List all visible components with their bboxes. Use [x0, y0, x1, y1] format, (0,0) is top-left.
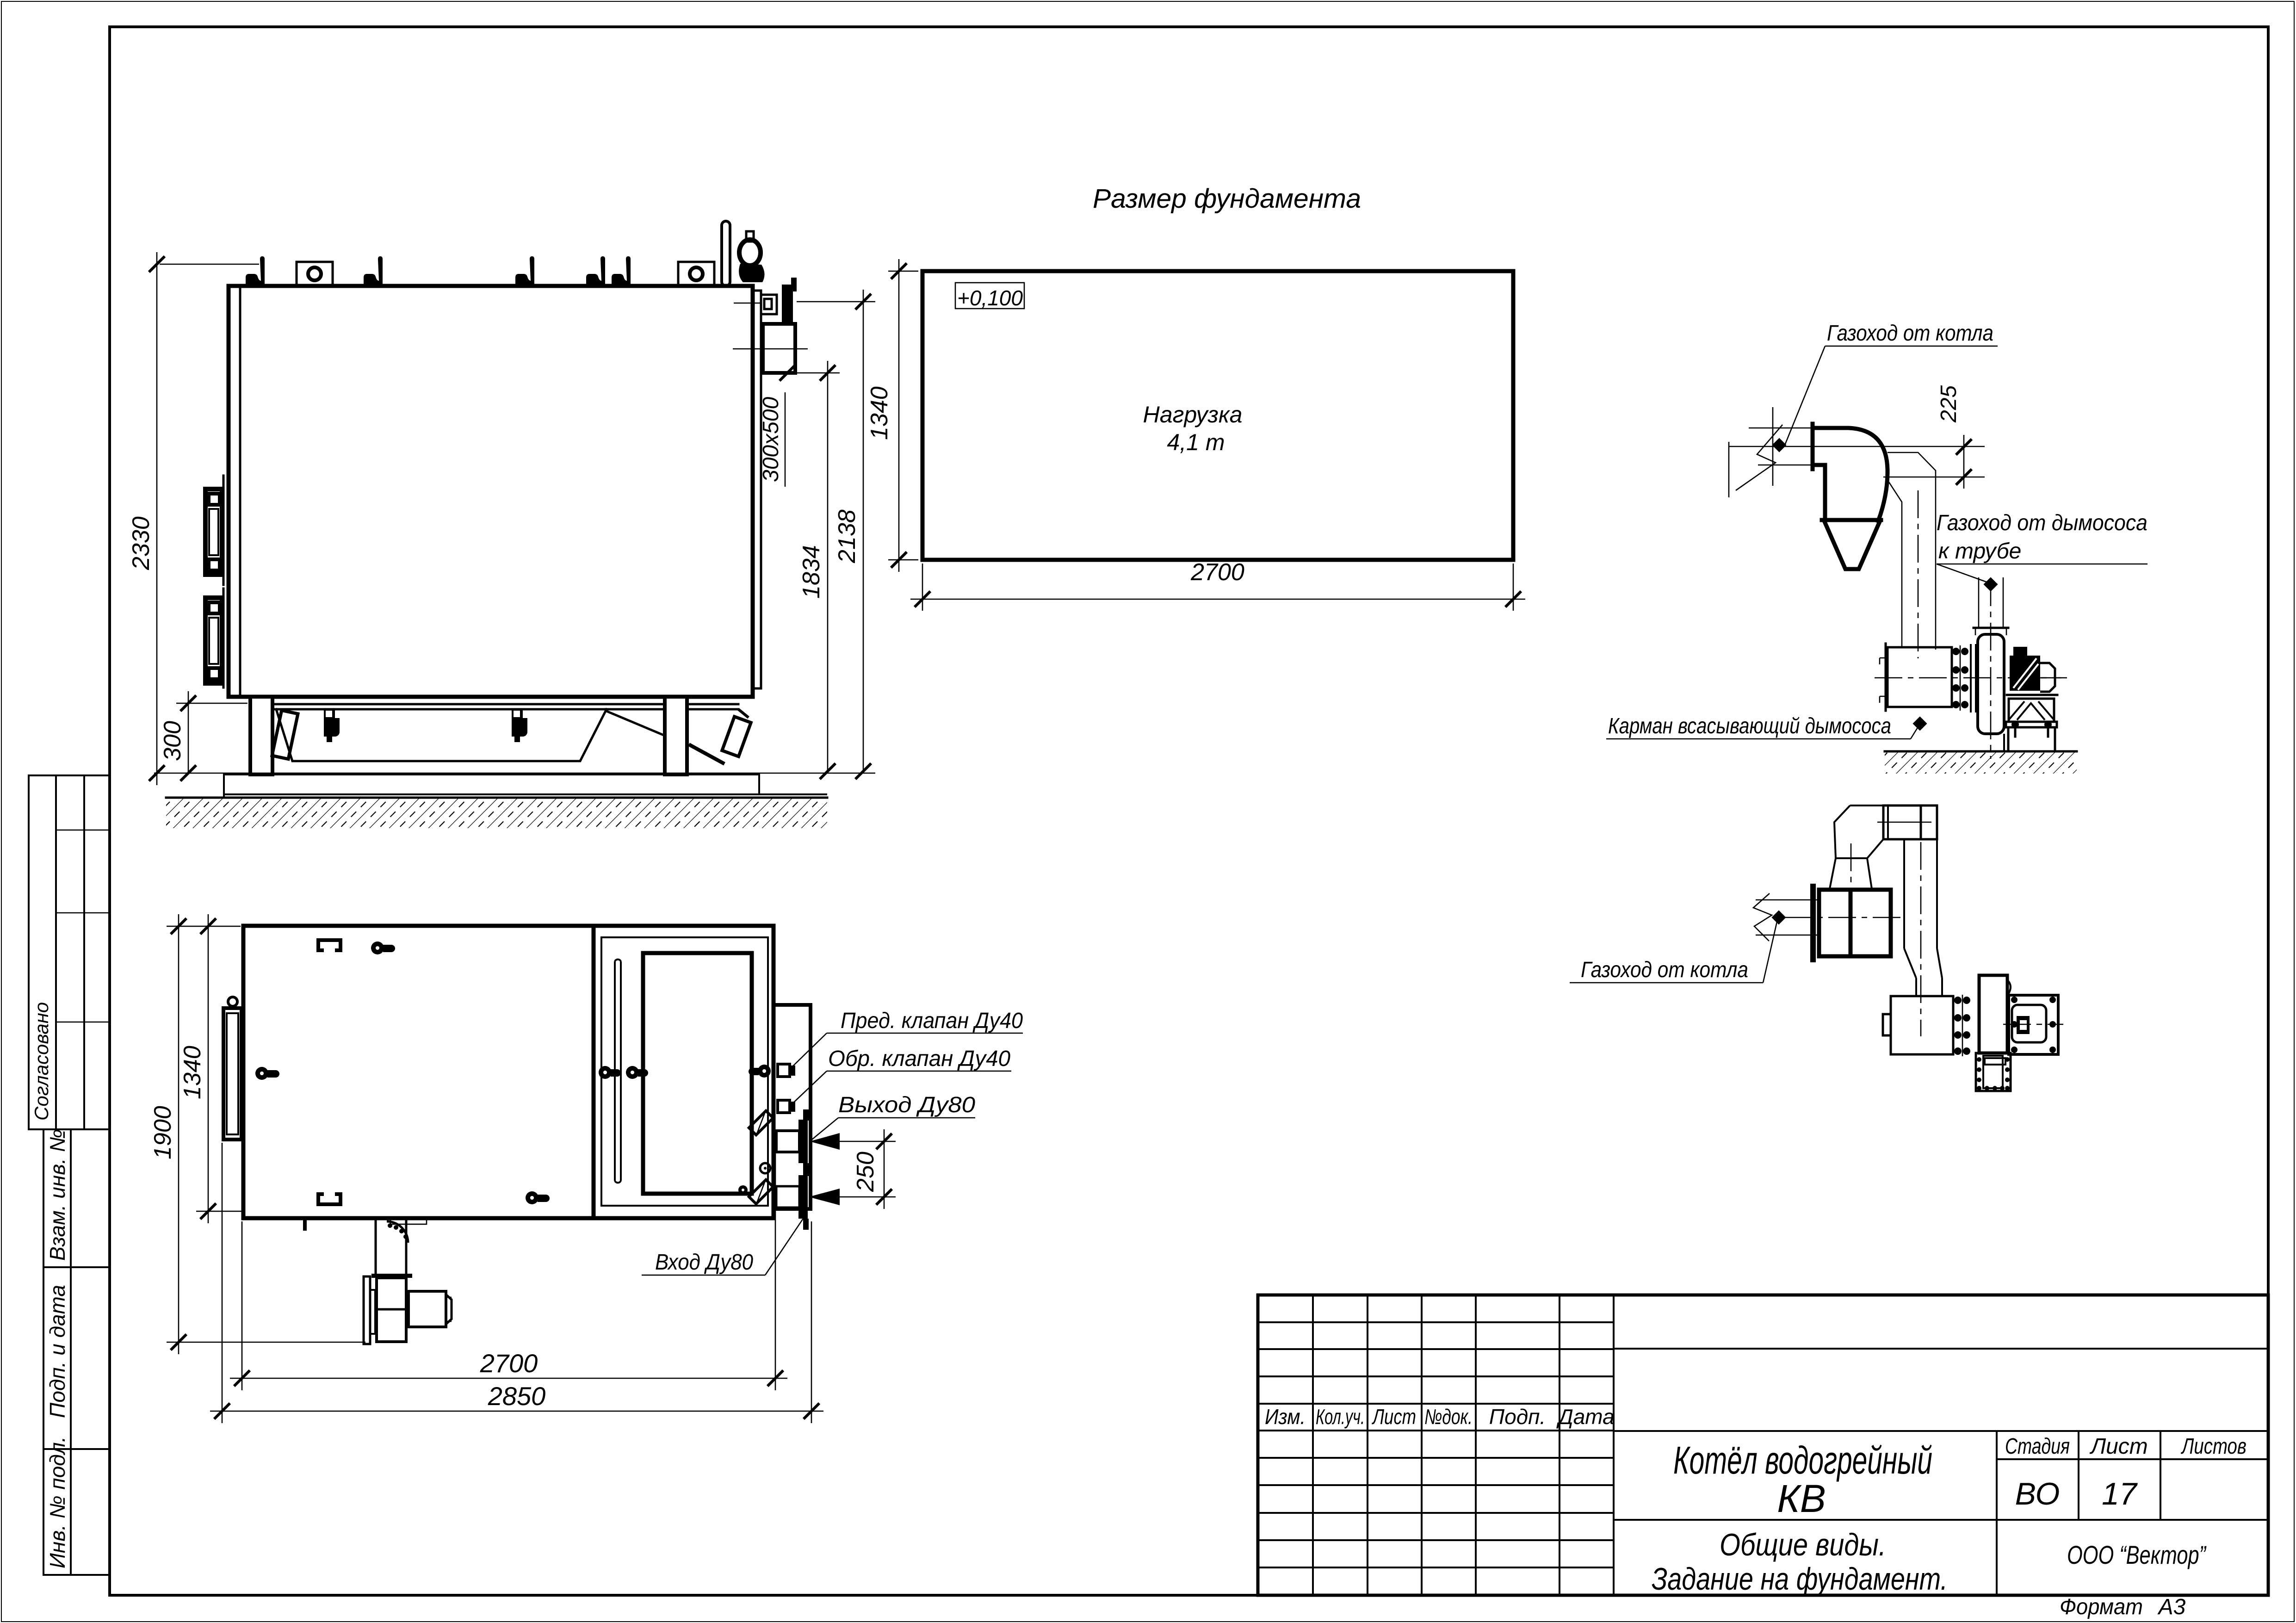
svg-text:17: 17	[2102, 1476, 2138, 1511]
svg-text:Инв. № подл.: Инв. № подл.	[45, 1437, 69, 1568]
svg-text:Стадия: Стадия	[2005, 1434, 2070, 1459]
svg-text:2330: 2330	[128, 516, 155, 570]
svg-text:225: 225	[1937, 385, 1961, 423]
svg-text:Нагрузка: Нагрузка	[1143, 402, 1243, 427]
svg-text:Листов: Листов	[2181, 1434, 2246, 1459]
svg-text:№док.: №док.	[1424, 1405, 1473, 1429]
svg-text:Формат: Формат	[2060, 1595, 2143, 1619]
svg-text:Вход Ду80: Вход Ду80	[655, 1250, 753, 1275]
svg-text:ВО: ВО	[2015, 1476, 2060, 1511]
svg-text:Дата: Дата	[1556, 1405, 1614, 1429]
svg-text:Газоход от котла: Газоход от котла	[1827, 321, 1993, 346]
svg-text:300: 300	[159, 721, 186, 761]
svg-text:Кол.уч.: Кол.уч.	[1316, 1405, 1365, 1429]
svg-text:Карман всасывающий дымососа: Карман всасывающий дымососа	[1608, 714, 1891, 738]
svg-text:Газоход от дымососа: Газоход от дымососа	[1937, 511, 2147, 535]
svg-text:250: 250	[852, 1152, 879, 1192]
svg-text:1834: 1834	[798, 545, 825, 599]
svg-text:2850: 2850	[488, 1381, 546, 1411]
svg-text:300х500: 300х500	[759, 397, 783, 482]
svg-text:Согласовано: Согласовано	[31, 1002, 52, 1121]
svg-text:2700: 2700	[480, 1349, 538, 1378]
svg-text:Общие виды.: Общие виды.	[1720, 1527, 1886, 1562]
svg-text:Взам. инв. №: Взам. инв. №	[45, 1129, 69, 1261]
svg-text:Изм.: Изм.	[1265, 1405, 1306, 1429]
svg-text:КВ: КВ	[1777, 1477, 1826, 1520]
svg-text:ООО “Вектор”: ООО “Вектор”	[2067, 1540, 2207, 1569]
svg-text:2700: 2700	[1190, 559, 1244, 586]
svg-text:Выход Ду80: Выход Ду80	[838, 1093, 975, 1117]
svg-text:Размер фундамента: Размер фундамента	[1093, 184, 1361, 214]
svg-text:Пред. клапан Ду40: Пред. клапан Ду40	[841, 1009, 1023, 1033]
svg-text:Лист: Лист	[2089, 1434, 2148, 1459]
svg-text:1340: 1340	[866, 386, 893, 440]
svg-text:к трубе: к трубе	[1938, 539, 2021, 564]
svg-text:1340: 1340	[179, 1046, 206, 1099]
svg-text:Обр. клапан Ду40: Обр. клапан Ду40	[828, 1047, 1010, 1071]
svg-text:2138: 2138	[834, 509, 860, 564]
svg-text:Подп. и дата: Подп. и дата	[45, 1285, 69, 1418]
svg-text:1900: 1900	[149, 1106, 176, 1159]
svg-text:Газоход от котла: Газоход от котла	[1581, 958, 1748, 982]
svg-text:4,1 т: 4,1 т	[1167, 429, 1225, 455]
svg-text:+0,100: +0,100	[957, 286, 1023, 310]
svg-text:Лист: Лист	[1372, 1405, 1416, 1429]
svg-text:Задание на фундамент.: Задание на фундамент.	[1652, 1561, 1948, 1597]
svg-text:Котёл водогрейный: Котёл водогрейный	[1673, 1438, 1932, 1482]
svg-text:А3: А3	[2157, 1595, 2186, 1619]
svg-text:Подп.: Подп.	[1489, 1405, 1546, 1429]
